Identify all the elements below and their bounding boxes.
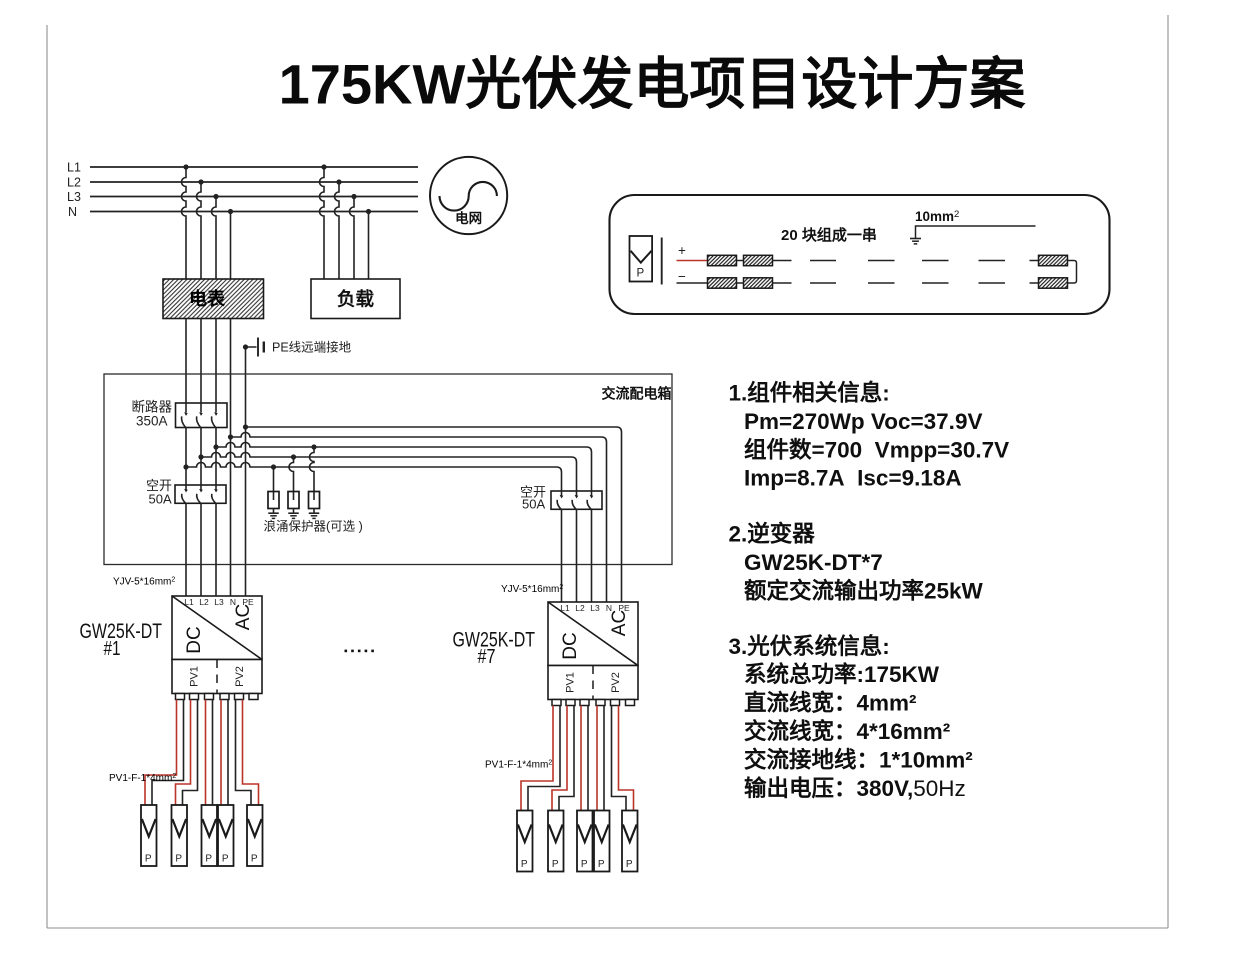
- svg-text:2.逆变器: 2.逆变器: [729, 521, 816, 547]
- svg-text:N: N: [606, 603, 612, 613]
- svg-text:AC: AC: [609, 610, 630, 636]
- svg-text:系统总功率:175KW: 系统总功率:175KW: [744, 661, 940, 687]
- svg-text:PV2: PV2: [610, 672, 622, 693]
- svg-text:L3: L3: [214, 597, 224, 607]
- svg-text:175KW光伏发电项目设计方案: 175KW光伏发电项目设计方案: [279, 53, 1027, 116]
- svg-text:负载: 负载: [337, 289, 375, 310]
- svg-text:P: P: [251, 854, 258, 865]
- svg-text:GW25K-DT*7: GW25K-DT*7: [744, 550, 883, 575]
- svg-text:PE: PE: [242, 597, 254, 607]
- svg-text:L1: L1: [184, 597, 194, 607]
- svg-text:电网: 电网: [455, 210, 482, 226]
- svg-text:P: P: [521, 859, 528, 870]
- svg-text:电表: 电表: [189, 288, 226, 309]
- svg-text:交流配电箱: 交流配电箱: [602, 386, 672, 402]
- svg-text:PV2: PV2: [234, 666, 246, 687]
- svg-text:3.光伏系统信息:: 3.光伏系统信息:: [729, 633, 890, 659]
- svg-text:#7: #7: [478, 646, 496, 668]
- svg-text:DC: DC: [560, 632, 581, 659]
- svg-text:#1: #1: [104, 638, 121, 660]
- svg-text:PV1-F-1*4mm2: PV1-F-1*4mm2: [109, 773, 176, 784]
- svg-text:P: P: [175, 854, 182, 865]
- svg-text:50A: 50A: [522, 497, 545, 512]
- svg-text:P: P: [145, 854, 152, 865]
- svg-text:交流线宽：4*16mm²: 交流线宽：4*16mm²: [744, 718, 951, 744]
- svg-text:350A: 350A: [136, 414, 168, 429]
- svg-text:DC: DC: [184, 626, 205, 653]
- svg-text:P: P: [626, 859, 633, 870]
- svg-text:N: N: [68, 205, 77, 219]
- svg-text:Imp=8.7A Isc=9.18A: Imp=8.7A Isc=9.18A: [744, 466, 962, 491]
- svg-text:P: P: [552, 859, 559, 870]
- svg-text:YJV-5*16mm2: YJV-5*16mm2: [501, 584, 563, 595]
- svg-text:Pm=270Wp Voc=37.9V: Pm=270Wp Voc=37.9V: [744, 409, 982, 434]
- svg-text:直流线宽：4mm²: 直流线宽：4mm²: [744, 690, 917, 716]
- svg-text:PE: PE: [618, 603, 630, 613]
- svg-text:L2: L2: [575, 603, 585, 613]
- svg-text:10mm2: 10mm2: [915, 209, 959, 224]
- svg-text:PE线远端接地: PE线远端接地: [272, 340, 352, 355]
- svg-text:L1: L1: [67, 161, 81, 175]
- svg-text:GW25K-DT: GW25K-DT: [80, 620, 163, 643]
- svg-text:P: P: [205, 854, 212, 865]
- svg-text:P: P: [598, 859, 605, 870]
- svg-text:50A: 50A: [149, 492, 172, 507]
- svg-text:L1: L1: [560, 603, 570, 613]
- svg-text:组件数=700 Vmpp=30.7V: 组件数=700 Vmpp=30.7V: [744, 436, 1009, 462]
- svg-text:AC: AC: [233, 604, 254, 630]
- svg-text:P: P: [222, 854, 229, 865]
- svg-text:浪涌保护器(可选 ): 浪涌保护器(可选 ): [264, 519, 363, 534]
- svg-text:PV1-F-1*4mm2: PV1-F-1*4mm2: [485, 760, 552, 771]
- svg-text:N: N: [230, 597, 236, 607]
- svg-text:交流接地线：1*10mm²: 交流接地线：1*10mm²: [744, 746, 973, 772]
- svg-text:YJV-5*16mm2: YJV-5*16mm2: [113, 577, 175, 588]
- svg-text:P: P: [581, 859, 588, 870]
- svg-text:L2: L2: [199, 597, 209, 607]
- svg-text:1.组件相关信息:: 1.组件相关信息:: [729, 380, 890, 406]
- svg-text:输出电压：380V,50Hz: 输出电压：380V,50Hz: [744, 775, 966, 801]
- svg-text:+: +: [678, 243, 686, 258]
- svg-text:PV1: PV1: [565, 672, 577, 693]
- svg-text:20 块组成一串: 20 块组成一串: [781, 226, 877, 244]
- svg-text:L3: L3: [67, 190, 81, 204]
- svg-text:额定交流输出功率25kW: 额定交流输出功率25kW: [744, 577, 984, 603]
- svg-text:PV1: PV1: [189, 666, 201, 687]
- svg-text:−: −: [678, 269, 686, 284]
- svg-text:断路器: 断路器: [132, 400, 173, 415]
- svg-text:P: P: [636, 268, 644, 280]
- svg-text:L3: L3: [590, 603, 600, 613]
- svg-text:L2: L2: [67, 176, 81, 190]
